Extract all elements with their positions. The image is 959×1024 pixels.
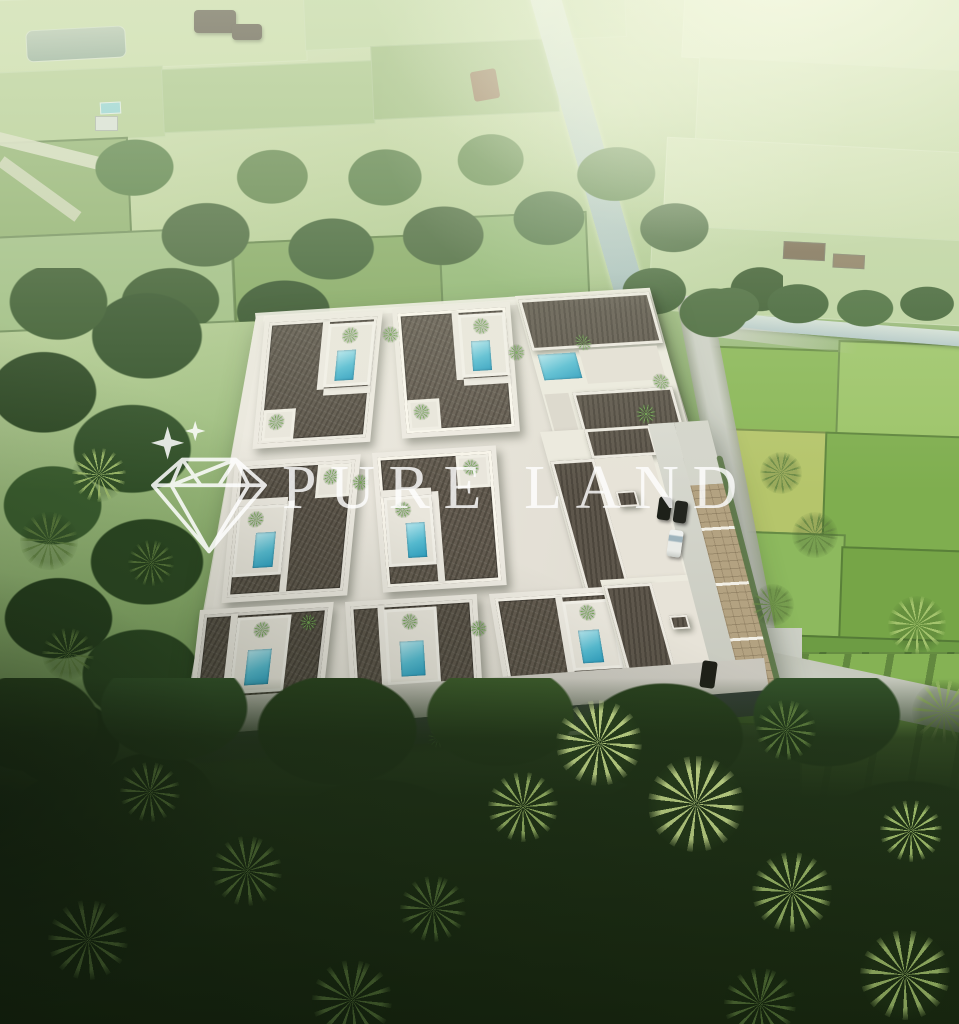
villa-courtyard [235,507,284,575]
plunge-pool [334,350,356,381]
villa-patio [318,466,348,494]
palm-tree [413,403,431,421]
palm-tree [382,326,399,343]
plunge-pool [406,522,428,558]
palm-tree [488,772,558,842]
building-roof [584,425,658,459]
palm-tree [462,459,480,477]
courtyard-villa [252,311,382,449]
palm-tree [577,603,597,621]
palm-tree [888,596,946,654]
plunge-pool [470,340,492,371]
palm-tree [48,900,128,980]
palm-tree [300,614,317,631]
villa-courtyard [461,315,506,374]
palm-tree [128,540,174,586]
palm-tree [322,468,341,486]
palm-tree [20,512,78,570]
palm-tree [760,452,802,494]
villa-patio [458,457,487,485]
palm-tree [648,756,744,852]
palm-tree [880,800,942,862]
palm-tree [352,474,369,491]
lap-pool [537,352,582,380]
palm-tree [394,501,412,519]
palm-tree [400,876,466,942]
courtyard-villa [372,445,507,592]
palm-tree [72,448,126,502]
plunge-pool [253,532,276,568]
palm-tree [752,852,832,932]
palm-tree [860,930,950,1020]
plunge-pool [400,641,426,677]
palm-tree [247,510,266,528]
palm-tree [42,628,94,680]
palm-tree [267,413,286,431]
palm-tree [341,326,360,344]
villa-courtyard [327,324,373,384]
palm-tree [752,584,794,626]
palm-tree [472,317,490,335]
palm-tree [508,344,525,361]
palm-tree [212,836,282,906]
palm-tree [636,404,656,424]
skylight [669,615,691,630]
villa-courtyard [387,497,434,564]
palm-tree [401,613,419,631]
courtyard-villa [392,302,520,439]
palm-tree [756,700,816,760]
palm-tree [470,620,487,637]
palm-tree [556,700,642,786]
courtyard-villa [221,454,360,603]
villa-patio [410,401,438,427]
villa-patio [264,411,292,437]
palm-tree [120,762,180,822]
aerial-masterplan-render: PURE LAND [0,0,959,1024]
skylight [615,490,639,507]
palm-tree [792,512,838,558]
plunge-pool [578,629,604,663]
palm-tree [252,621,271,639]
villa-courtyard [387,610,439,683]
